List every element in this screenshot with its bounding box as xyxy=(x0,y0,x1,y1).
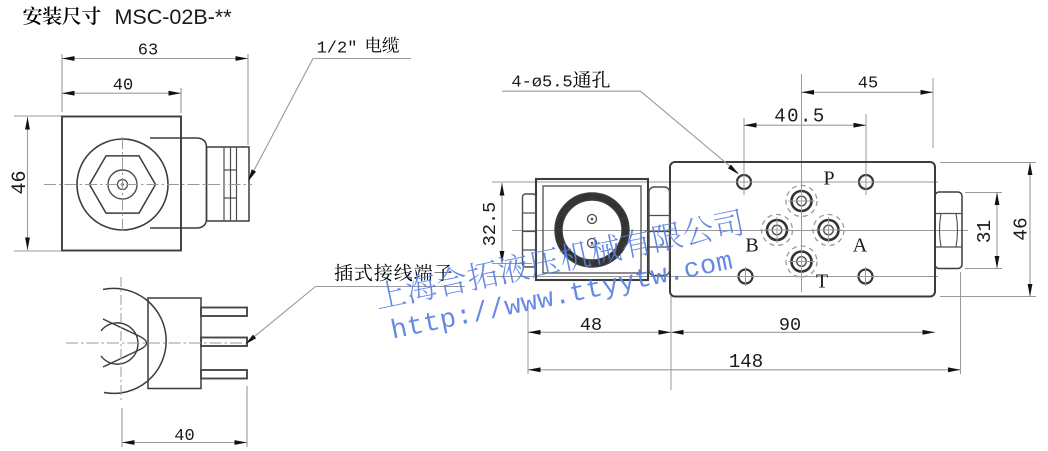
svg-text:40.5: 40.5 xyxy=(774,106,826,128)
svg-text:46: 46 xyxy=(1011,217,1033,240)
svg-text:32.5: 32.5 xyxy=(480,202,501,246)
svg-text:40: 40 xyxy=(174,427,194,446)
svg-text:B: B xyxy=(745,235,758,257)
svg-text:90: 90 xyxy=(779,315,801,336)
svg-text:63: 63 xyxy=(138,42,158,61)
svg-text:148: 148 xyxy=(729,351,763,373)
svg-text:A: A xyxy=(853,235,868,257)
svg-text:31: 31 xyxy=(974,220,996,243)
svg-text:1/2″: 1/2″ xyxy=(317,40,358,59)
svg-text:T: T xyxy=(816,271,828,293)
svg-text:MSC-02B-**: MSC-02B-** xyxy=(115,5,233,29)
svg-text:45: 45 xyxy=(858,75,878,94)
svg-text:46: 46 xyxy=(9,170,32,194)
svg-text:40: 40 xyxy=(113,77,133,96)
svg-text:48: 48 xyxy=(580,315,602,336)
svg-text:4-ø5.5: 4-ø5.5 xyxy=(511,74,572,93)
svg-text:P: P xyxy=(823,168,834,190)
